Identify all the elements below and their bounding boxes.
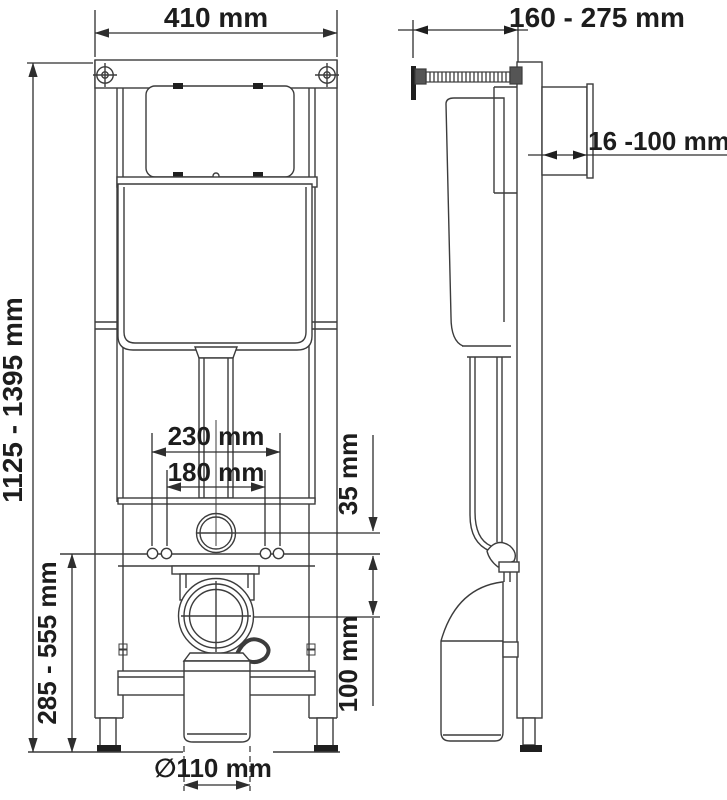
foot-left	[97, 718, 121, 752]
side-view	[411, 62, 593, 752]
flush-pipe-side	[470, 357, 519, 582]
elbow-bracket	[503, 642, 518, 657]
front-view	[28, 60, 380, 752]
cistern-tank	[118, 184, 312, 350]
foot-right	[314, 718, 338, 752]
dim-depth-range: 160 - 275 mm	[398, 2, 685, 62]
anchor-spacing-outer-label: 230 mm	[168, 421, 265, 451]
inlet-drop-label: 35 mm	[333, 433, 363, 515]
outlet-height-label: 285 - 555 mm	[32, 561, 62, 724]
outlet-diameter-label: ∅110 mm	[154, 753, 272, 783]
installation-frame-diagram: 410 mm 1125 - 1395 mm 285 - 555 mm 230 m…	[0, 0, 727, 800]
dim-outlet-diameter: ∅110 mm	[154, 746, 272, 791]
drain-pipe	[184, 661, 250, 742]
flush-plate-duct	[542, 87, 587, 175]
faceplate-range-label: 16 -100 mm	[588, 126, 727, 156]
dim-outlet-drop: 100 mm	[333, 556, 373, 712]
dim-outlet-height-range: 285 - 555 mm	[32, 554, 72, 752]
drain-flange	[184, 653, 250, 661]
technical-drawing-page: 410 mm 1125 - 1395 mm 285 - 555 mm 230 m…	[0, 0, 727, 800]
drain-elbow-side	[441, 582, 518, 741]
cistern-side-profile	[446, 98, 511, 357]
inspection-opening	[146, 83, 294, 179]
frame-height-label: 1125 - 1395 mm	[0, 297, 28, 503]
frame-width-label: 410 mm	[164, 2, 268, 33]
top-crossbar	[95, 60, 337, 88]
anchor-spacing-inner-label: 180 mm	[168, 457, 265, 487]
threaded-rod	[411, 66, 522, 100]
drain-outlet-circle	[179, 579, 254, 654]
dim-frame-width: 410 mm	[95, 2, 337, 57]
side-rail	[517, 62, 542, 752]
depth-range-label: 160 - 275 mm	[509, 2, 685, 33]
outlet-drop-label: 100 mm	[333, 616, 363, 713]
